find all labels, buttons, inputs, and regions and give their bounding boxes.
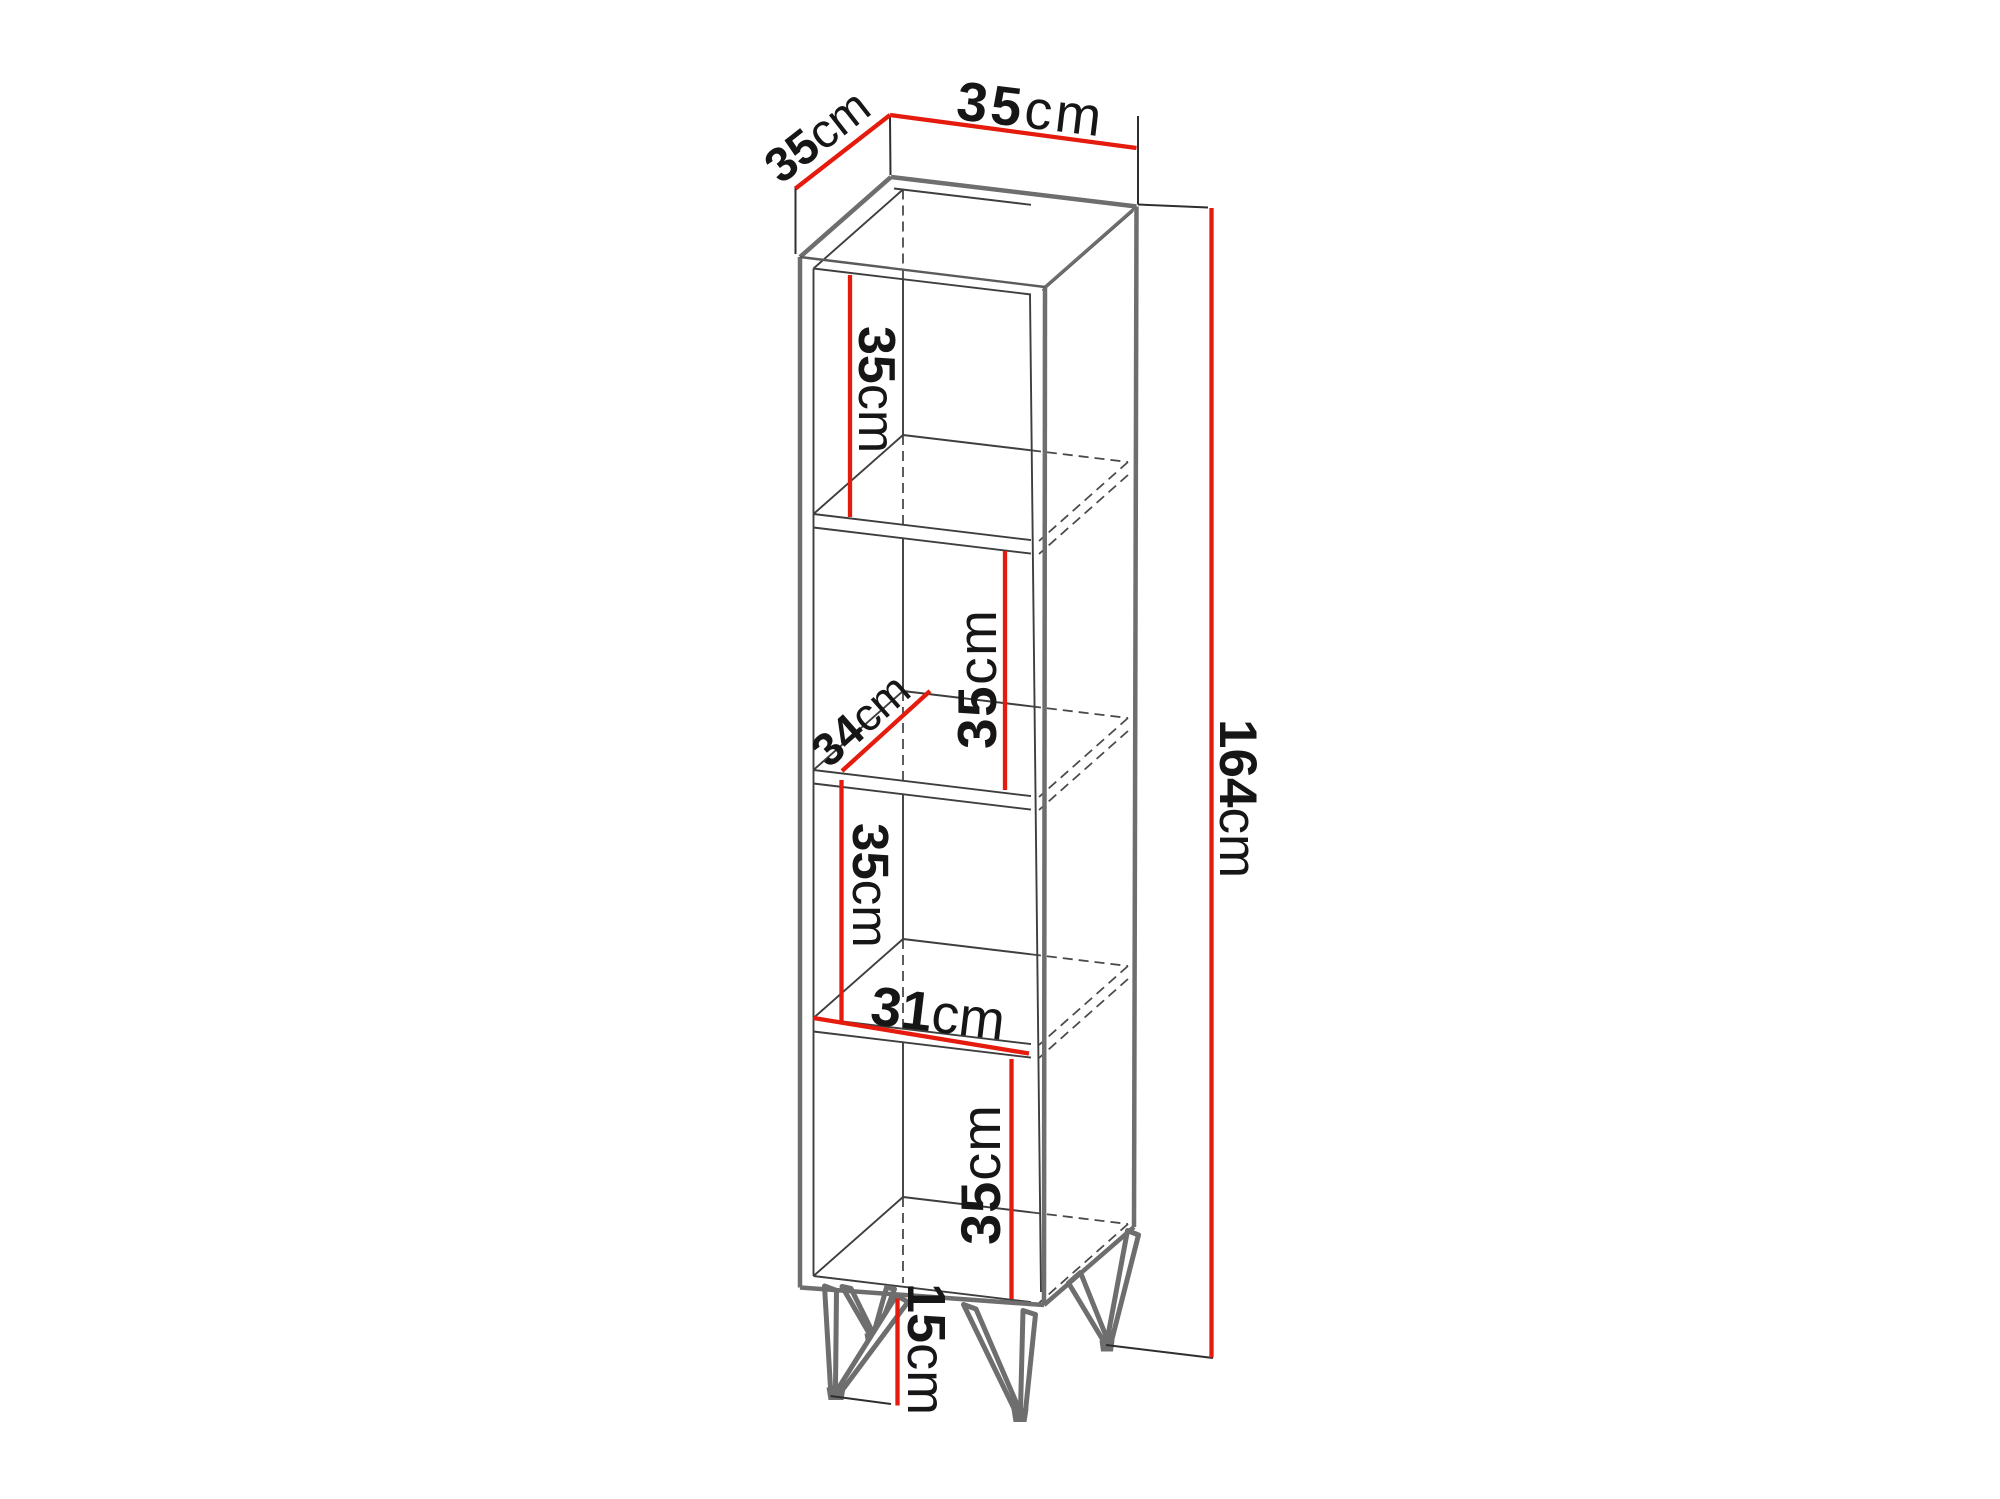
svg-text:35cm: 35cm	[946, 608, 1008, 749]
svg-text:35cm: 35cm	[847, 326, 905, 453]
svg-text:15cm: 15cm	[896, 1283, 956, 1415]
svg-text:164cm: 164cm	[1208, 719, 1267, 878]
svg-text:35cm: 35cm	[949, 1104, 1012, 1245]
svg-text:35cm: 35cm	[842, 823, 899, 948]
